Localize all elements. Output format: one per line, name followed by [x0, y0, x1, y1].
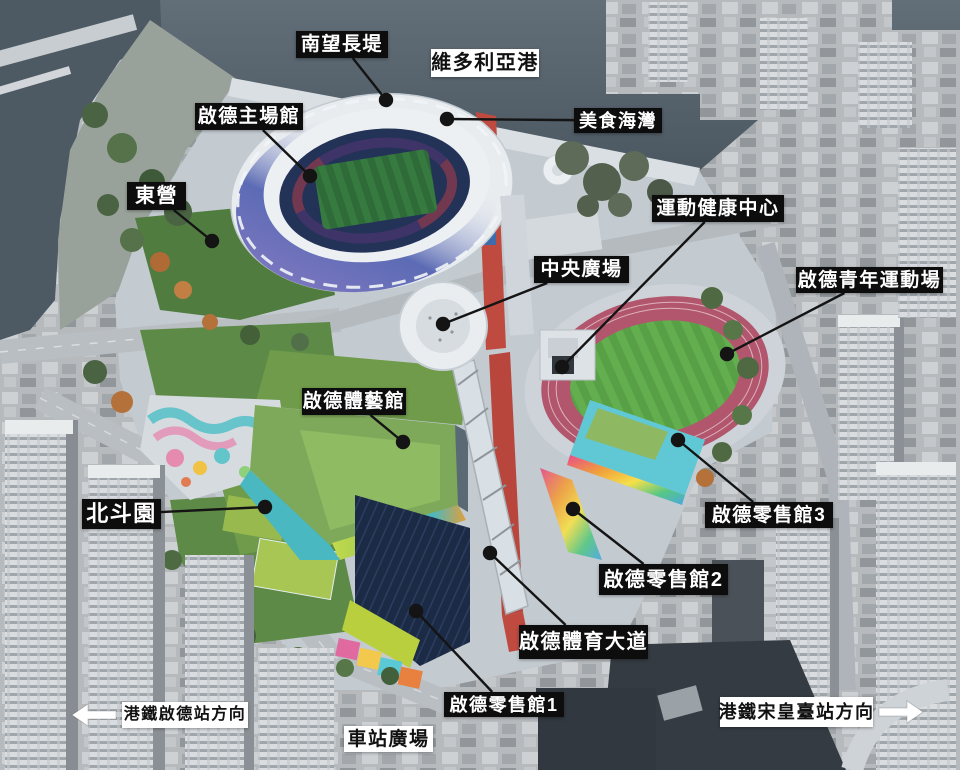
label-station-square: 車站廣場 [344, 726, 433, 752]
annotation-labels: 南望長堤維多利亞港啟德主場館美食海灣東營運動健康中心中央廣場啟德青年運動場啟德體… [0, 0, 960, 770]
label-victoria-harbour: 維多利亞港 [431, 49, 539, 77]
label-youth-sports-ground: 啟德青年運動場 [796, 267, 943, 293]
label-kai-tak-main-stadium: 啟德主場館 [195, 103, 303, 130]
label-retail-hall-3: 啟德零售館3 [705, 502, 833, 528]
label-retail-hall-1: 啟德零售館1 [444, 692, 564, 717]
label-sports-avenue: 啟德體育大道 [519, 625, 648, 659]
label-south-breakwater: 南望長堤 [296, 31, 388, 58]
label-east-lawn: 東營 [127, 182, 186, 210]
label-central-plaza: 中央廣場 [534, 256, 629, 283]
label-mtr-sung-wong-toi-station-direction: 港鐵宋皇臺站方向 [720, 697, 873, 727]
label-sports-health-centre: 運動健康中心 [652, 195, 784, 222]
kai-tak-sports-park-map: 南望長堤維多利亞港啟德主場館美食海灣東營運動健康中心中央廣場啟德青年運動場啟德體… [0, 0, 960, 770]
label-retail-hall-2: 啟德零售館2 [599, 564, 728, 595]
label-food-bay: 美食海灣 [574, 108, 662, 133]
label-mtr-kai-tak-station-direction: 港鐵啟德站方向 [122, 702, 248, 728]
label-dipper-garden: 北斗園 [82, 499, 161, 529]
label-kai-tak-arena: 啟德體藝館 [302, 388, 406, 415]
